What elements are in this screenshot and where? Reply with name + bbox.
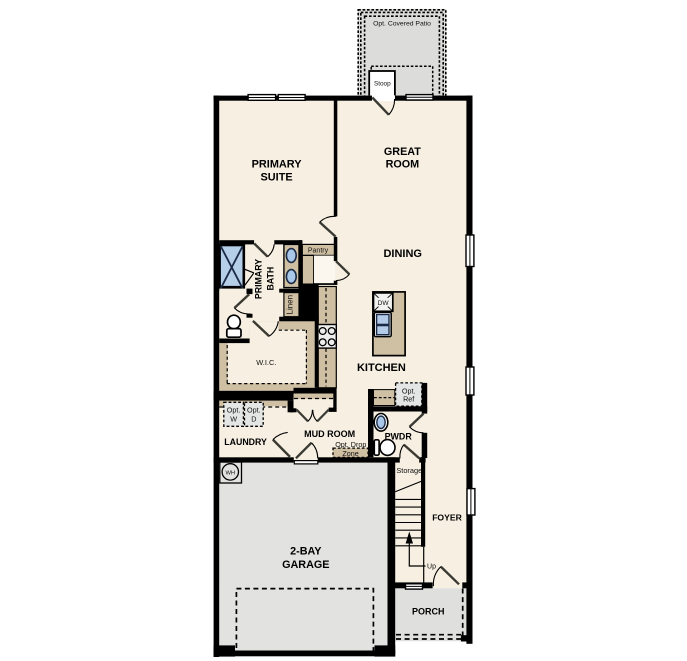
svg-text:PORCH: PORCH bbox=[412, 606, 445, 616]
svg-text:GARAGE: GARAGE bbox=[282, 559, 329, 571]
svg-text:BATH: BATH bbox=[266, 267, 276, 291]
svg-text:W: W bbox=[230, 414, 237, 423]
svg-text:Opt.: Opt. bbox=[247, 406, 261, 415]
svg-text:Zone: Zone bbox=[342, 449, 358, 458]
svg-text:PRIMARY: PRIMARY bbox=[252, 159, 303, 171]
svg-text:KITCHEN: KITCHEN bbox=[357, 362, 406, 374]
svg-text:FOYER: FOYER bbox=[432, 512, 462, 522]
svg-text:Opt. Drop: Opt. Drop bbox=[335, 440, 366, 449]
svg-text:W.I.C.: W.I.C. bbox=[256, 358, 276, 367]
svg-text:Linen: Linen bbox=[285, 295, 294, 315]
svg-text:Opt. Covered Patio: Opt. Covered Patio bbox=[373, 20, 431, 27]
svg-text:PRIMARY: PRIMARY bbox=[254, 259, 264, 299]
svg-text:SUITE: SUITE bbox=[261, 171, 293, 183]
svg-text:Storage: Storage bbox=[396, 466, 422, 475]
svg-text:LAUNDRY: LAUNDRY bbox=[224, 437, 267, 447]
svg-text:GREAT: GREAT bbox=[384, 146, 421, 158]
svg-text:2-BAY: 2-BAY bbox=[290, 545, 322, 557]
svg-text:Opt.: Opt. bbox=[227, 406, 241, 415]
svg-text:DINING: DINING bbox=[383, 248, 422, 260]
svg-text:Stoop: Stoop bbox=[374, 80, 391, 87]
svg-text:D: D bbox=[251, 414, 256, 423]
svg-text:Pantry: Pantry bbox=[308, 248, 329, 255]
svg-text:Ref: Ref bbox=[403, 394, 414, 403]
svg-text:DW: DW bbox=[378, 300, 390, 307]
svg-text:ROOM: ROOM bbox=[386, 159, 420, 171]
svg-text:MUD ROOM: MUD ROOM bbox=[304, 429, 355, 439]
svg-text:WH: WH bbox=[225, 470, 235, 476]
svg-text:Up: Up bbox=[427, 563, 436, 570]
